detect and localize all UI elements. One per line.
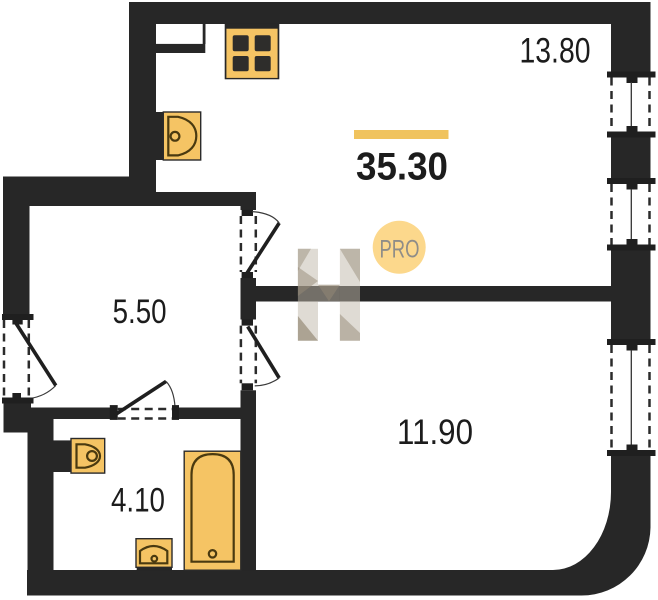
svg-text:PRO: PRO — [380, 236, 420, 264]
svg-text:13.80: 13.80 — [520, 31, 591, 70]
svg-text:35.30: 35.30 — [356, 146, 448, 189]
svg-text:4.10: 4.10 — [111, 482, 165, 520]
svg-text:11.90: 11.90 — [397, 413, 473, 452]
svg-text:5.50: 5.50 — [113, 293, 167, 331]
